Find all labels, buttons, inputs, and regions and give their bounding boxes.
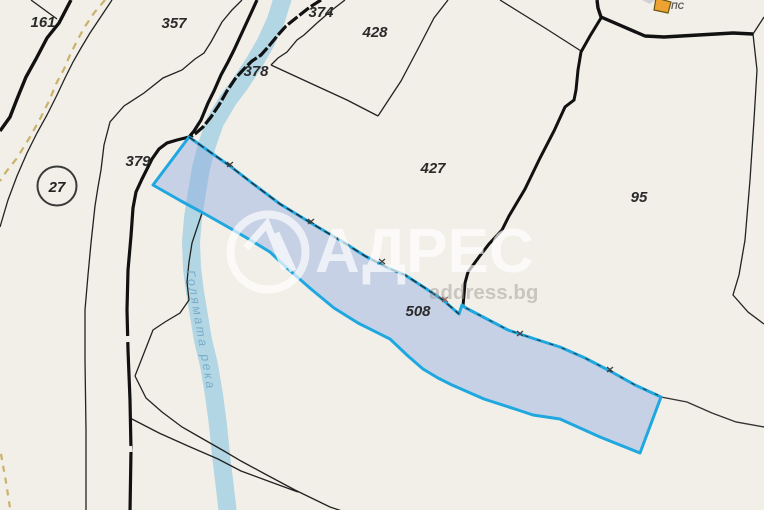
svg-text:374: 374	[308, 4, 334, 21]
svg-text:27: 27	[48, 179, 66, 196]
svg-text:95: 95	[631, 189, 648, 206]
svg-text:379: 379	[125, 153, 151, 170]
svg-text:428: 428	[361, 24, 388, 41]
svg-text:427: 427	[419, 160, 446, 177]
svg-text:508: 508	[405, 303, 431, 320]
svg-text:357: 357	[161, 15, 187, 32]
svg-text:АДРЕС: АДРЕС	[315, 217, 534, 286]
svg-text:address.bg: address.bg	[429, 281, 538, 304]
svg-text:378: 378	[243, 63, 269, 80]
svg-text:ПС: ПС	[671, 1, 684, 11]
svg-text:161: 161	[30, 14, 55, 31]
